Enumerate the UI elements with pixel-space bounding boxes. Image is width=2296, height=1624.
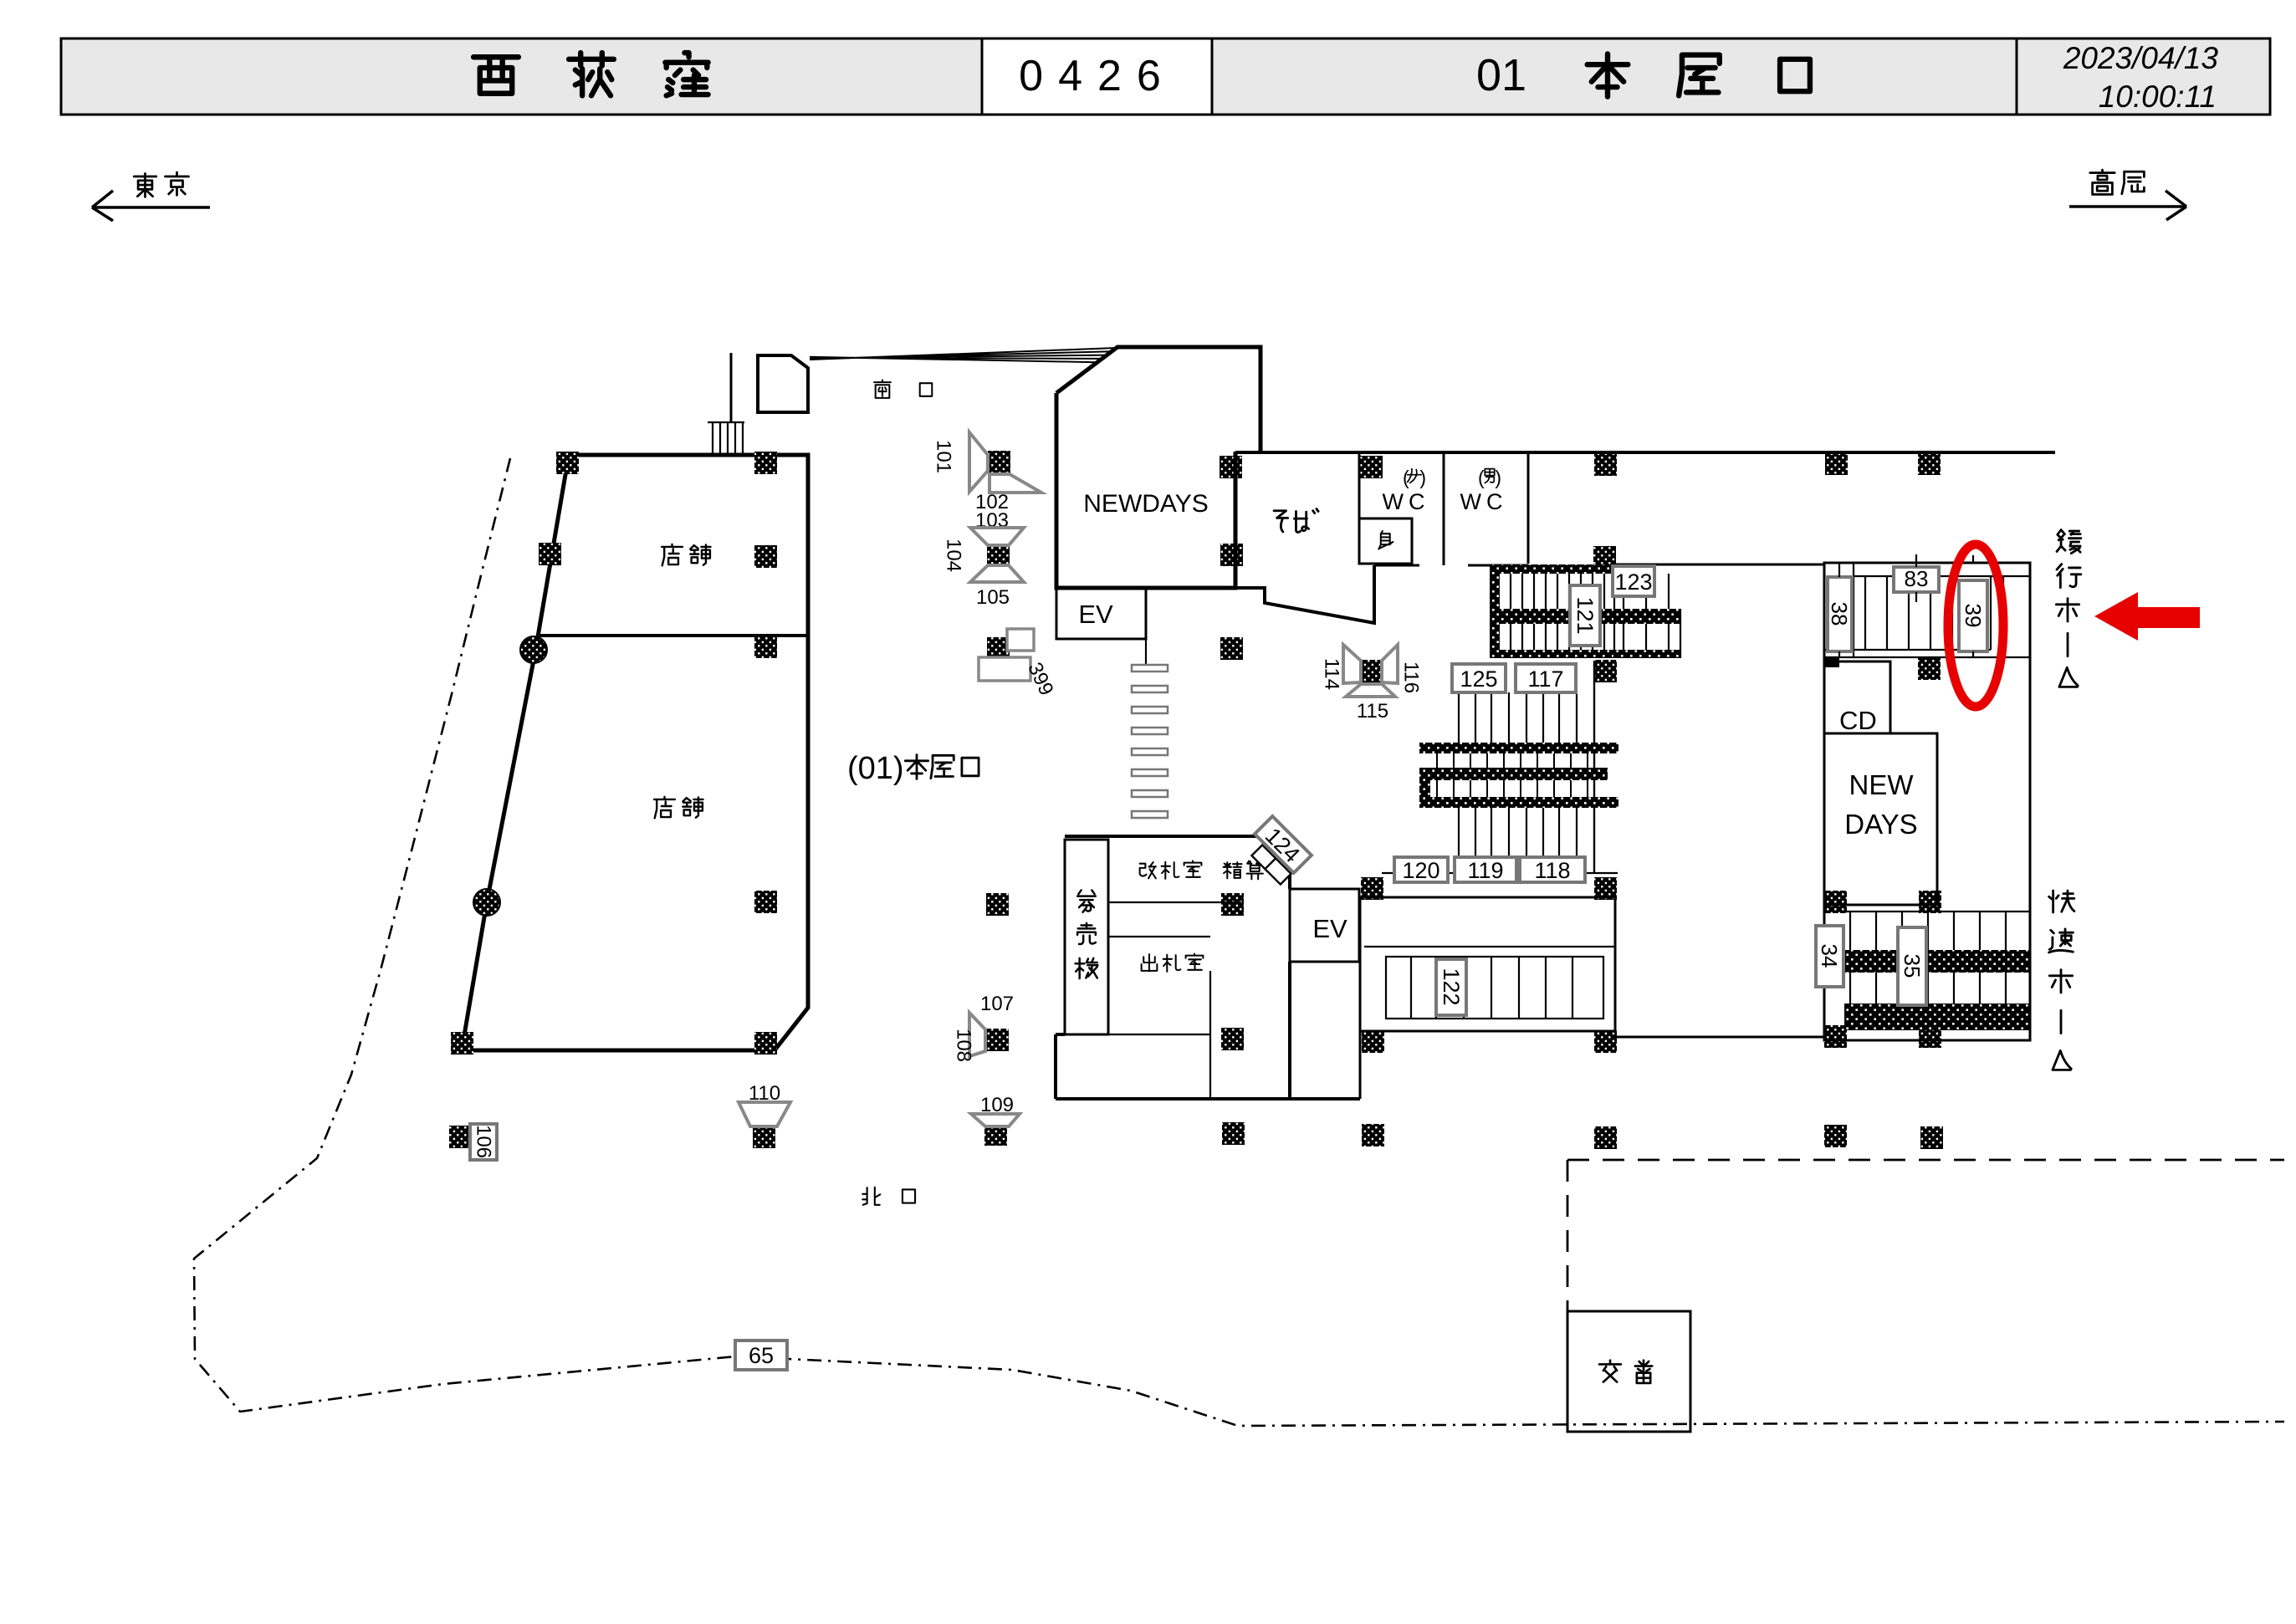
svg-text:115: 115	[1357, 700, 1388, 723]
svg-text:114: 114	[1321, 658, 1343, 690]
svg-text:EV: EV	[1078, 600, 1113, 629]
svg-text:108: 108	[953, 1029, 975, 1062]
svg-text:107: 107	[980, 993, 1014, 1015]
svg-text:DAYS: DAYS	[1844, 809, 1917, 840]
svg-text:CD: CD	[1839, 706, 1877, 735]
svg-text:104: 104	[943, 539, 965, 572]
svg-text:10:00:11: 10:00:11	[2099, 79, 2217, 114]
svg-text:105: 105	[976, 586, 1010, 609]
svg-text:( ): ( )	[1403, 467, 1426, 488]
svg-text:117: 117	[1527, 666, 1563, 692]
svg-text:34: 34	[1817, 944, 1842, 968]
svg-text:EV: EV	[1312, 914, 1347, 943]
svg-text:01: 01	[1476, 50, 1526, 100]
svg-text:118: 118	[1534, 858, 1570, 883]
svg-text:39: 39	[1961, 604, 1986, 628]
svg-text:123: 123	[1614, 569, 1652, 595]
svg-text:110: 110	[749, 1082, 780, 1105]
svg-text:83: 83	[1905, 566, 1929, 591]
svg-text:35: 35	[1900, 954, 1925, 978]
svg-text:119: 119	[1467, 858, 1503, 883]
svg-text:116: 116	[1400, 661, 1423, 693]
svg-text:122: 122	[1439, 968, 1464, 1005]
svg-text:125: 125	[1460, 666, 1497, 692]
svg-text:2023/04/13: 2023/04/13	[2063, 41, 2219, 75]
svg-text:38: 38	[1827, 602, 1852, 626]
svg-text:NEW: NEW	[1849, 769, 1915, 800]
svg-text:(01): (01)	[847, 751, 904, 786]
svg-text:120: 120	[1402, 858, 1439, 883]
svg-text:NEWDAYS: NEWDAYS	[1083, 490, 1208, 518]
svg-text:WC: WC	[1460, 489, 1508, 514]
svg-text:WC: WC	[1383, 489, 1430, 514]
svg-text:101: 101	[933, 440, 955, 473]
svg-text:121: 121	[1572, 596, 1598, 634]
svg-text:109: 109	[980, 1094, 1014, 1116]
svg-text:106: 106	[473, 1125, 495, 1158]
svg-text:0426: 0426	[1019, 52, 1176, 100]
svg-text:65: 65	[749, 1343, 774, 1368]
